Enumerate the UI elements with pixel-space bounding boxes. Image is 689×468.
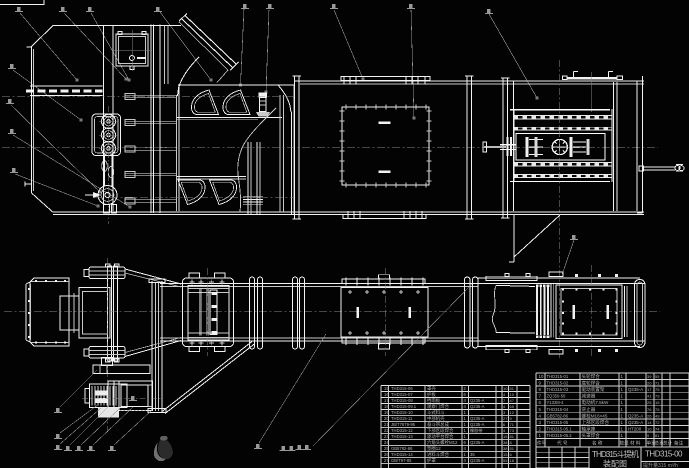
svg-text:76: 76 bbox=[647, 407, 652, 412]
svg-text:THD315-04: THD315-04 bbox=[547, 407, 569, 412]
svg-text:总计: 总计 bbox=[663, 440, 673, 447]
svg-text:10: 10 bbox=[647, 426, 652, 431]
svg-text:Y132M-4: Y132M-4 bbox=[547, 400, 565, 405]
svg-text:THD315-08: THD315-08 bbox=[391, 398, 413, 403]
svg-text:GB/T97-85: GB/T97-85 bbox=[391, 458, 412, 463]
svg-text:71: 71 bbox=[510, 422, 515, 427]
svg-text:HT200: HT200 bbox=[628, 426, 642, 431]
svg-text:THD315-10: THD315-10 bbox=[391, 410, 413, 415]
svg-text:55: 55 bbox=[655, 374, 660, 379]
svg-text:驱动平台焊合: 驱动平台焊合 bbox=[427, 433, 454, 440]
svg-text:15: 15 bbox=[655, 400, 660, 405]
svg-text:名 称: 名 称 bbox=[592, 440, 603, 447]
svg-text:观察门焊合: 观察门焊合 bbox=[427, 403, 450, 410]
svg-text:Q235-A: Q235-A bbox=[470, 458, 485, 463]
svg-text:12: 12 bbox=[510, 410, 515, 415]
svg-text:20: 20 bbox=[647, 381, 652, 386]
svg-text:41: 41 bbox=[647, 394, 652, 399]
svg-text:材 料: 材 料 bbox=[630, 440, 641, 447]
svg-text:10: 10 bbox=[503, 386, 508, 391]
svg-text:73: 73 bbox=[510, 428, 515, 433]
svg-text:51: 51 bbox=[510, 386, 515, 391]
svg-text:螺栓M16×45: 螺栓M16×45 bbox=[582, 412, 608, 419]
svg-text:21: 21 bbox=[384, 422, 389, 427]
svg-text:橡胶带: 橡胶带 bbox=[470, 427, 483, 434]
svg-text:74: 74 bbox=[655, 426, 660, 431]
svg-text:斗式料斗: 斗式料斗 bbox=[427, 409, 445, 416]
svg-text:24: 24 bbox=[384, 440, 389, 445]
svg-text:代 号: 代 号 bbox=[557, 440, 568, 447]
svg-text:27: 27 bbox=[384, 458, 389, 463]
svg-text:畚斗带总成: 畚斗带总成 bbox=[427, 421, 450, 428]
svg-text:38: 38 bbox=[503, 440, 508, 445]
svg-text:逆止器: 逆止器 bbox=[582, 406, 596, 413]
svg-text:23: 23 bbox=[384, 434, 389, 439]
svg-text:Q235-A: Q235-A bbox=[628, 413, 643, 418]
svg-text:THD315-12: THD315-12 bbox=[391, 428, 413, 433]
svg-text:75: 75 bbox=[655, 407, 660, 412]
svg-text:罩壳: 罩壳 bbox=[427, 385, 436, 392]
svg-text:THD315-00: THD315-00 bbox=[645, 450, 683, 459]
svg-text:39: 39 bbox=[647, 374, 652, 379]
svg-text:10: 10 bbox=[510, 392, 515, 397]
svg-text:THD315-05.1: THD315-05.1 bbox=[547, 426, 573, 431]
svg-text:Q235-A: Q235-A bbox=[470, 440, 485, 445]
svg-text:护罩: 护罩 bbox=[427, 457, 436, 464]
svg-text:71: 71 bbox=[655, 381, 660, 386]
svg-text:备注: 备注 bbox=[674, 440, 684, 447]
svg-text:THD315-01: THD315-01 bbox=[547, 374, 569, 379]
svg-text:THD315斗提机: THD315斗提机 bbox=[592, 449, 640, 459]
svg-text:Q235-A: Q235-A bbox=[628, 420, 643, 425]
svg-text:THD315-14: THD315-14 bbox=[391, 452, 413, 457]
svg-text:JB/T7679-95: JB/T7679-95 bbox=[391, 422, 416, 427]
svg-text:72: 72 bbox=[655, 420, 660, 425]
svg-text:头罩焊合: 头罩焊合 bbox=[582, 432, 601, 439]
svg-text:THD315-06: THD315-06 bbox=[391, 386, 413, 391]
svg-text:件号: 件号 bbox=[537, 440, 547, 447]
svg-text:垫圈12: 垫圈12 bbox=[427, 445, 441, 452]
svg-text:电动机7.5kW: 电动机7.5kW bbox=[582, 399, 609, 406]
svg-text:装配图: 装配图 bbox=[603, 459, 627, 468]
svg-text:THD315-05: THD315-05 bbox=[547, 420, 569, 425]
svg-text:ZQ350-50: ZQ350-50 bbox=[547, 394, 567, 399]
svg-text:22: 22 bbox=[384, 428, 389, 433]
svg-text:减速器: 减速器 bbox=[582, 393, 596, 400]
svg-text:THD315-09.1: THD315-09.1 bbox=[391, 404, 417, 409]
svg-text:15: 15 bbox=[503, 452, 508, 457]
svg-text:数量: 数量 bbox=[620, 440, 630, 447]
svg-text:38: 38 bbox=[503, 446, 508, 451]
svg-text:51: 51 bbox=[510, 446, 515, 451]
svg-text:25: 25 bbox=[647, 400, 652, 405]
svg-text:26: 26 bbox=[384, 452, 389, 457]
svg-text:Q235-A: Q235-A bbox=[470, 404, 485, 409]
svg-text:25: 25 bbox=[384, 446, 389, 451]
svg-text:THD315-02: THD315-02 bbox=[547, 381, 569, 386]
svg-text:挡雨板: 挡雨板 bbox=[427, 397, 441, 404]
svg-text:35: 35 bbox=[470, 452, 475, 457]
svg-text:护板: 护板 bbox=[427, 391, 436, 398]
svg-text:15: 15 bbox=[384, 386, 389, 391]
svg-text:19: 19 bbox=[384, 410, 389, 415]
svg-text:14: 14 bbox=[647, 420, 652, 425]
svg-text:49: 49 bbox=[655, 413, 660, 418]
svg-text:THD315-07: THD315-07 bbox=[391, 392, 413, 397]
svg-text:17: 17 bbox=[647, 387, 652, 392]
svg-text:提升量315 m³/h: 提升量315 m³/h bbox=[643, 462, 678, 468]
svg-text:中部机壳: 中部机壳 bbox=[427, 415, 445, 422]
svg-text:65: 65 bbox=[510, 404, 515, 409]
svg-text:10: 10 bbox=[539, 374, 544, 379]
svg-text:THD315-13: THD315-13 bbox=[391, 434, 413, 439]
svg-text:26: 26 bbox=[647, 413, 652, 418]
svg-text:六角头螺栓M12: 六角头螺栓M12 bbox=[427, 439, 458, 446]
svg-text:73: 73 bbox=[655, 394, 660, 399]
svg-text:Q235-A: Q235-A bbox=[470, 398, 485, 403]
svg-text:GB5782-86: GB5782-86 bbox=[391, 446, 413, 451]
svg-text:Q235-A: Q235-A bbox=[470, 416, 485, 421]
svg-text:75: 75 bbox=[655, 387, 660, 392]
svg-text:驱动装置架: 驱动装置架 bbox=[582, 386, 605, 393]
svg-text:18: 18 bbox=[384, 404, 389, 409]
svg-text:81: 81 bbox=[655, 433, 660, 438]
svg-text:81: 81 bbox=[510, 434, 515, 439]
svg-text:THD315-11: THD315-11 bbox=[391, 416, 413, 421]
svg-text:下部区段焊合: 下部区段焊合 bbox=[427, 427, 454, 434]
svg-text:GB5782-86: GB5782-86 bbox=[547, 413, 569, 418]
svg-text:上部区段焊合: 上部区段焊合 bbox=[582, 419, 610, 426]
svg-text:47: 47 bbox=[510, 398, 515, 403]
svg-text:头轮焊合: 头轮焊合 bbox=[582, 373, 601, 380]
svg-text:15: 15 bbox=[503, 434, 508, 439]
svg-text:THD315-05.2: THD315-05.2 bbox=[547, 433, 573, 438]
svg-text:18: 18 bbox=[510, 458, 515, 463]
svg-text:16: 16 bbox=[384, 392, 389, 397]
svg-text:27: 27 bbox=[503, 416, 508, 421]
svg-text:Q235-A: Q235-A bbox=[470, 422, 485, 427]
svg-text:17: 17 bbox=[384, 398, 389, 403]
svg-text:轴承座: 轴承座 bbox=[582, 425, 596, 432]
svg-text:Q235-A: Q235-A bbox=[628, 387, 643, 392]
svg-text:THD315-03: THD315-03 bbox=[547, 387, 569, 392]
svg-text:55: 55 bbox=[503, 458, 508, 463]
svg-text:20: 20 bbox=[384, 416, 389, 421]
svg-text:进料斗焊合: 进料斗焊合 bbox=[427, 451, 450, 458]
svg-text:底轮焊合: 底轮焊合 bbox=[582, 380, 601, 387]
